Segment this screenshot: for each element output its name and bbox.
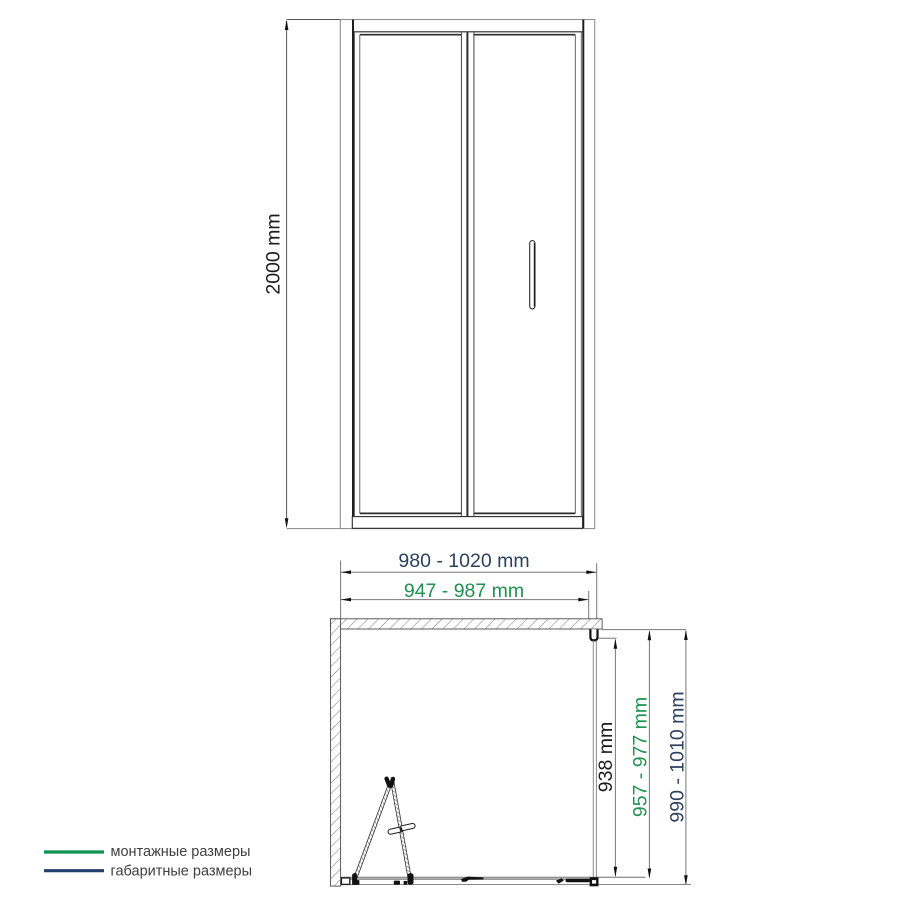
svg-text:габаритные размеры: габаритные размеры [111,863,253,879]
svg-text:980 - 1020 mm: 980 - 1020 mm [398,550,529,572]
svg-text:монтажные размеры: монтажные размеры [111,844,251,860]
svg-text:938 mm: 938 mm [595,722,617,792]
svg-text:990 - 1010 mm: 990 - 1010 mm [666,691,688,822]
svg-text:957 - 977 mm: 957 - 977 mm [629,697,651,817]
svg-text:947 - 987 mm: 947 - 987 mm [404,580,524,602]
svg-text:2000 mm: 2000 mm [263,213,285,294]
